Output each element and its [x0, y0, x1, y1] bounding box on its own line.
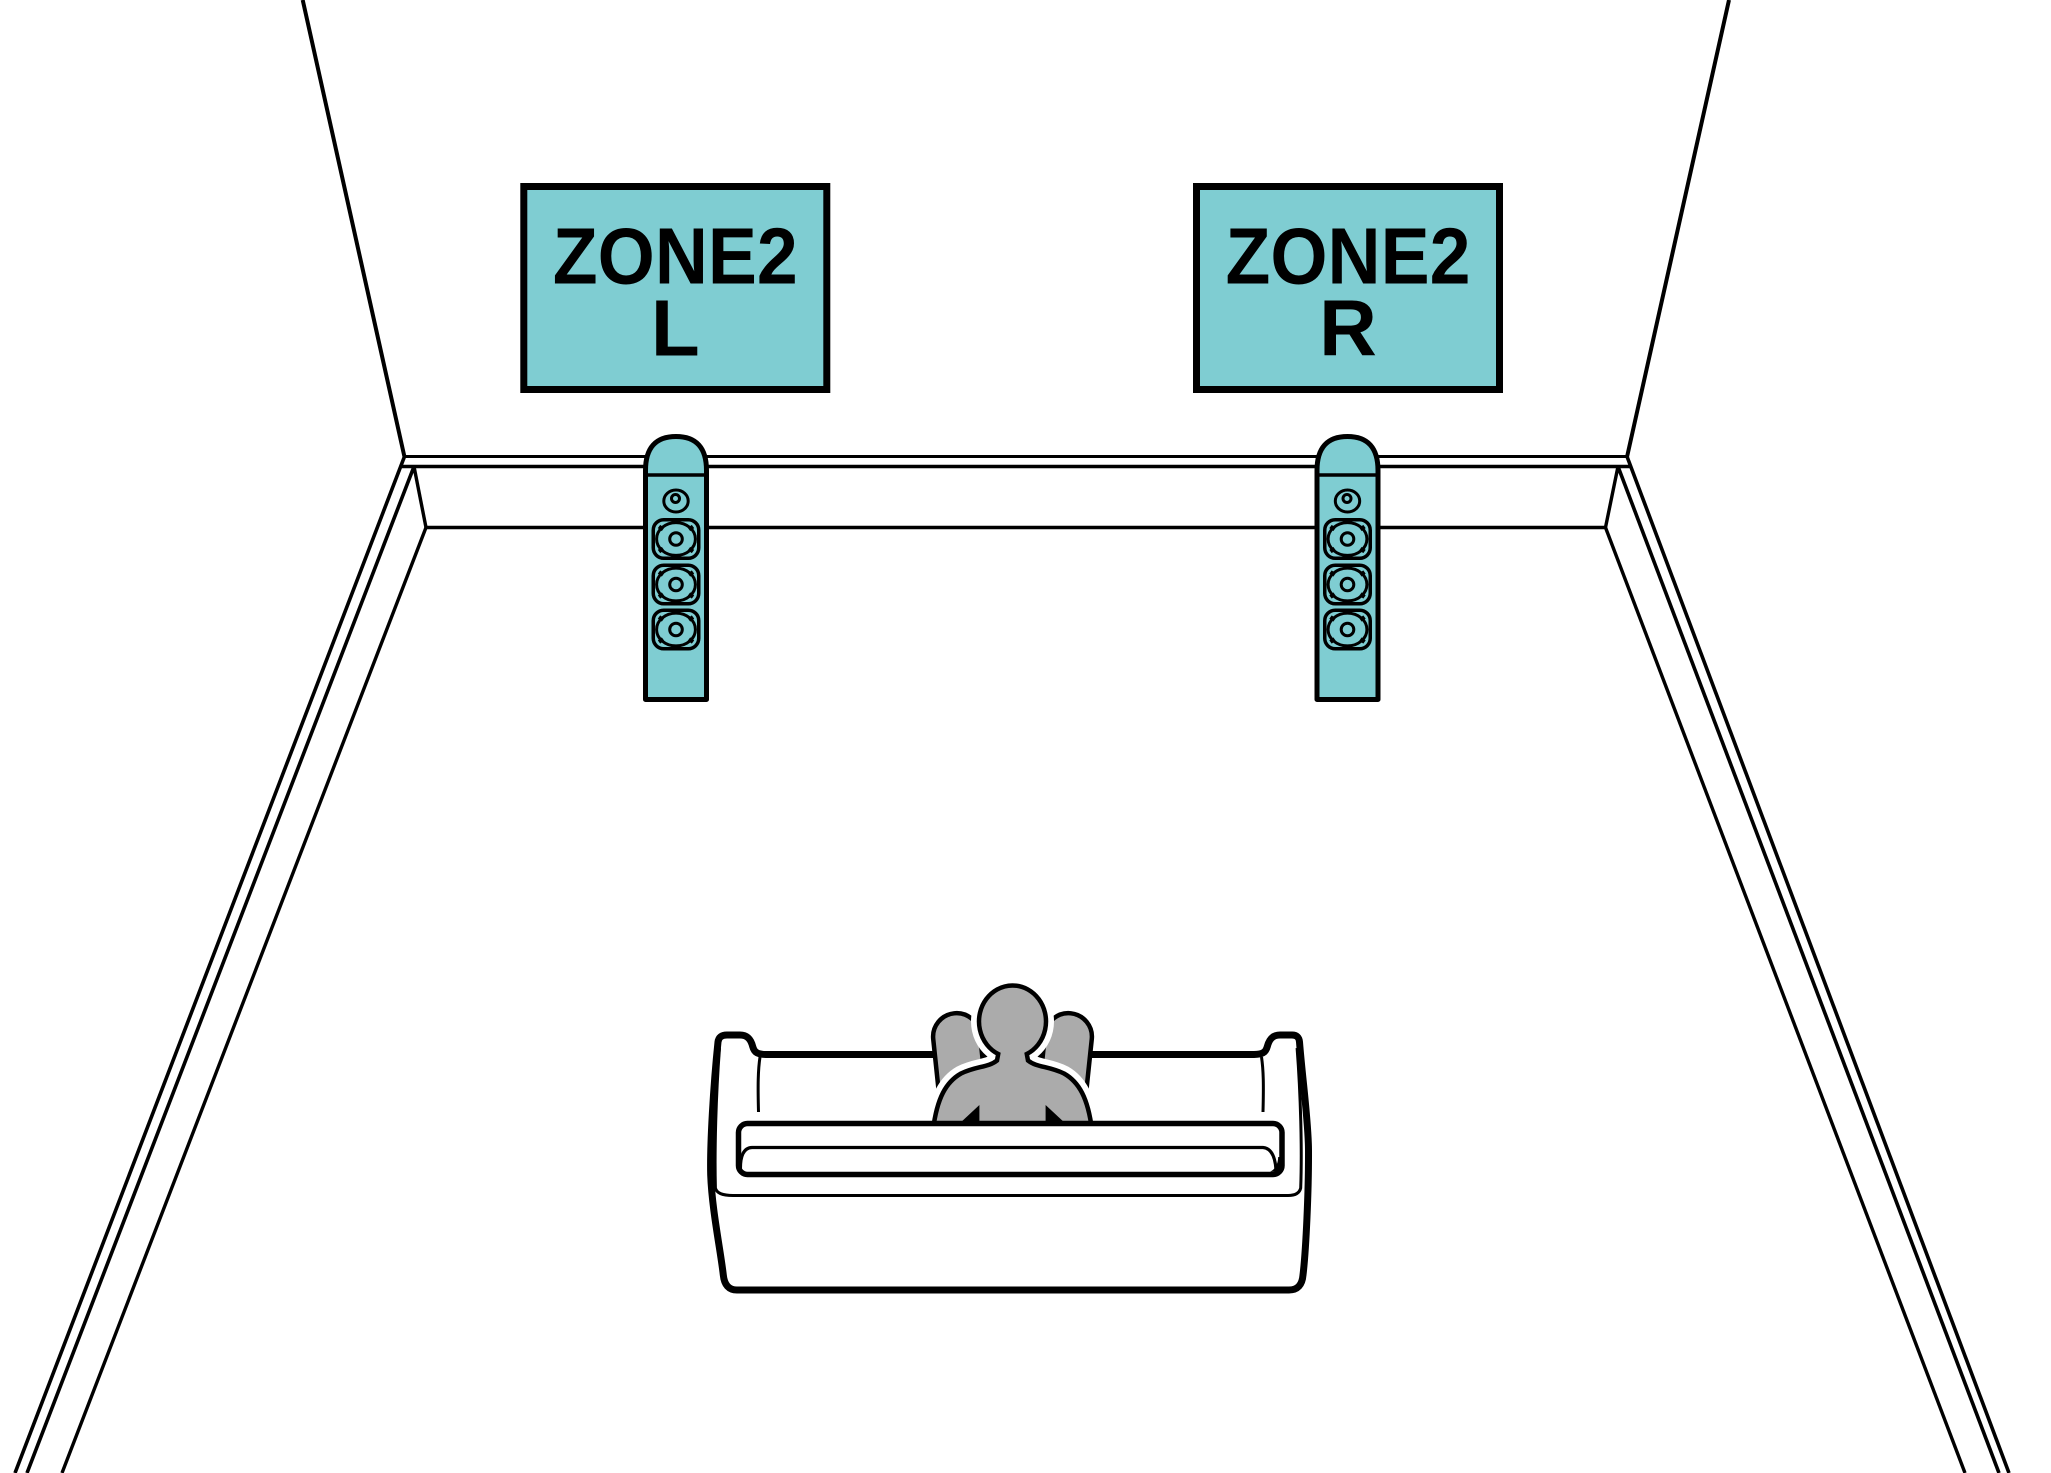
svg-text:R: R — [1319, 284, 1377, 373]
svg-text:L: L — [651, 284, 700, 373]
